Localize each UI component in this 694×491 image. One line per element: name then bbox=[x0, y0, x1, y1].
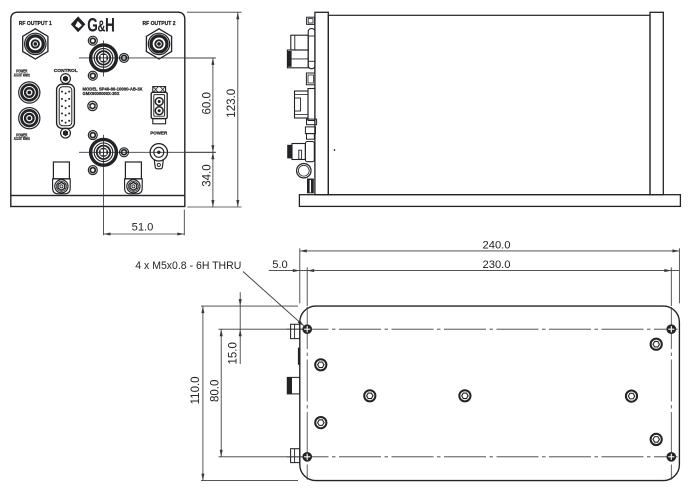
svg-text:15.0: 15.0 bbox=[228, 342, 240, 364]
svg-text:230.0: 230.0 bbox=[483, 259, 511, 271]
svg-text:60.0: 60.0 bbox=[202, 92, 214, 114]
svg-text:51.0: 51.0 bbox=[132, 222, 154, 234]
svg-text:ADJUST 40MHz: ADJUST 40MHz bbox=[14, 72, 30, 77]
svg-text:240.0: 240.0 bbox=[483, 239, 511, 251]
svg-text:POWER: POWER bbox=[150, 131, 167, 137]
svg-text:CONTROL: CONTROL bbox=[54, 68, 78, 74]
svg-text:5.0: 5.0 bbox=[272, 259, 288, 271]
svg-text:RF OUTPUT 1: RF OUTPUT 1 bbox=[19, 21, 52, 27]
svg-text:110.0: 110.0 bbox=[190, 376, 202, 404]
svg-text:G&H: G&H bbox=[87, 14, 114, 36]
svg-text:34.0: 34.0 bbox=[202, 164, 214, 186]
svg-text:GMX0000000X-30X: GMX0000000X-30X bbox=[83, 91, 121, 96]
svg-text:4 x M5x0.8 - 6H THRU: 4 x M5x0.8 - 6H THRU bbox=[135, 260, 241, 272]
svg-text:80.0: 80.0 bbox=[209, 380, 221, 402]
svg-text:ADJUST 60MHz: ADJUST 60MHz bbox=[14, 136, 30, 141]
svg-text:RF OUTPUT 2: RF OUTPUT 2 bbox=[143, 21, 176, 27]
svg-text:123.0: 123.0 bbox=[226, 89, 238, 118]
